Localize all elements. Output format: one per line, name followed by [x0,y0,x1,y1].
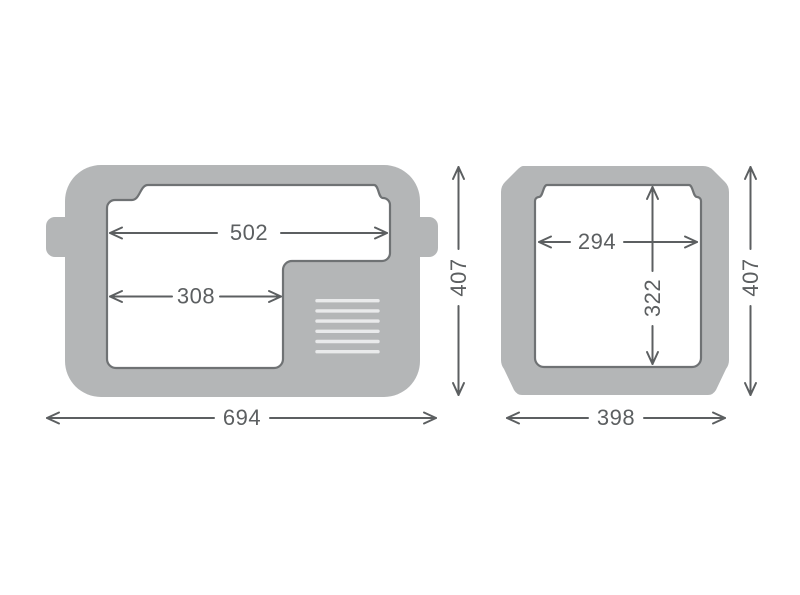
dim-overall-width-side: 694 [47,405,436,430]
dim-label-294: 294 [578,229,616,254]
cooler-dimension-diagram: 502 308 694 407 [0,0,800,595]
front-view-interior-cutout [535,185,701,367]
dim-label-407-right: 407 [738,258,763,296]
dim-overall-height-front: 407 [738,167,763,395]
front-view: 294 322 398 407 [501,166,763,430]
dim-label-407-left: 407 [446,258,471,296]
diagram-svg: 502 308 694 407 [0,0,800,595]
side-view: 502 308 694 407 [46,165,471,430]
dim-label-398: 398 [597,405,635,430]
dim-label-694: 694 [223,405,261,430]
dim-label-322: 322 [640,279,665,317]
dim-overall-height-side: 407 [446,167,471,395]
dim-label-308: 308 [177,284,215,309]
dim-overall-width-front: 398 [507,405,725,430]
dim-label-502: 502 [230,220,268,245]
